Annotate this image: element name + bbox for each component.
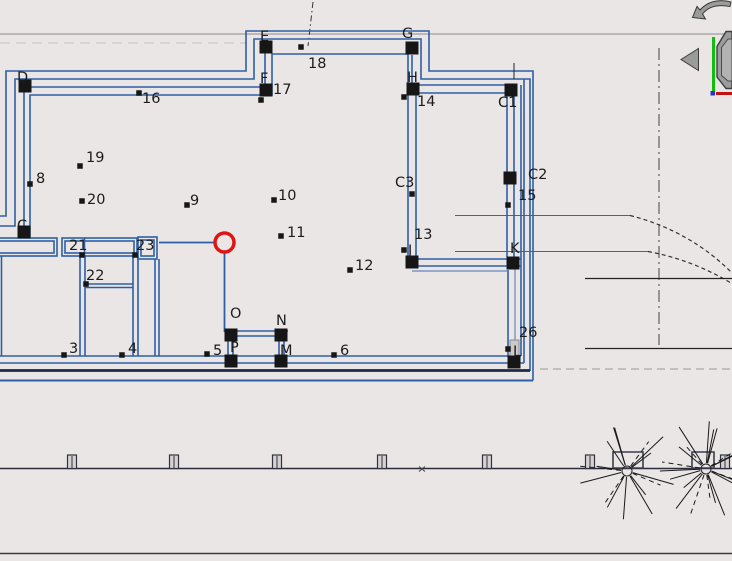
svg-text:20: 20 — [87, 192, 105, 208]
svg-text:4: 4 — [128, 341, 137, 357]
svg-text:D: D — [17, 70, 28, 86]
svg-text:18: 18 — [308, 56, 326, 72]
svg-text:J: J — [407, 243, 412, 259]
svg-text:9: 9 — [190, 193, 199, 209]
svg-text:19: 19 — [86, 150, 104, 166]
svg-text:E: E — [260, 29, 269, 45]
svg-text:C2: C2 — [528, 167, 547, 183]
svg-text:N: N — [276, 313, 287, 329]
svg-text:F: F — [260, 71, 268, 87]
svg-text:10: 10 — [278, 188, 296, 204]
viewport-background — [0, 0, 732, 561]
axis-origin-dot — [711, 91, 716, 96]
svg-text:16: 16 — [142, 91, 160, 107]
corner-point-H[interactable]: H — [407, 70, 420, 96]
svg-text:6: 6 — [340, 343, 349, 359]
svg-text:C: C — [17, 218, 27, 234]
svg-text:21: 21 — [69, 238, 87, 254]
svg-text:14: 14 — [417, 94, 435, 110]
svg-text:L: L — [513, 344, 521, 360]
svg-text:O: O — [230, 306, 241, 322]
cad-canvas[interactable]: DCEFGHC1C2JKLONPM C334568910111213141516… — [0, 0, 732, 561]
svg-text:M: M — [280, 343, 293, 359]
svg-text:13: 13 — [414, 227, 432, 243]
svg-text:3: 3 — [69, 341, 78, 357]
svg-text:26: 26 — [519, 325, 537, 341]
svg-text:15: 15 — [518, 188, 536, 204]
svg-text:22: 22 — [86, 268, 104, 284]
svg-text:K: K — [510, 241, 520, 257]
svg-text:17: 17 — [273, 82, 291, 98]
svg-text:H: H — [407, 70, 418, 86]
corner-point-N[interactable]: N — [275, 313, 288, 342]
svg-text:23: 23 — [136, 238, 154, 254]
svg-text:P: P — [230, 340, 239, 356]
svg-text:8: 8 — [36, 171, 45, 187]
fence-post — [273, 455, 282, 469]
fence-post — [378, 455, 387, 469]
fence-post — [170, 455, 179, 469]
svg-text:11: 11 — [287, 225, 305, 241]
svg-text:12: 12 — [355, 258, 373, 274]
fence-post — [586, 455, 595, 469]
fence-post — [68, 455, 77, 469]
svg-text:5: 5 — [213, 343, 222, 359]
fence-post — [483, 455, 492, 469]
survey-point-22[interactable]: 22 — [83, 268, 104, 287]
svg-text:C1: C1 — [498, 95, 517, 111]
svg-text:C3: C3 — [395, 175, 414, 191]
svg-text:G: G — [402, 26, 413, 42]
